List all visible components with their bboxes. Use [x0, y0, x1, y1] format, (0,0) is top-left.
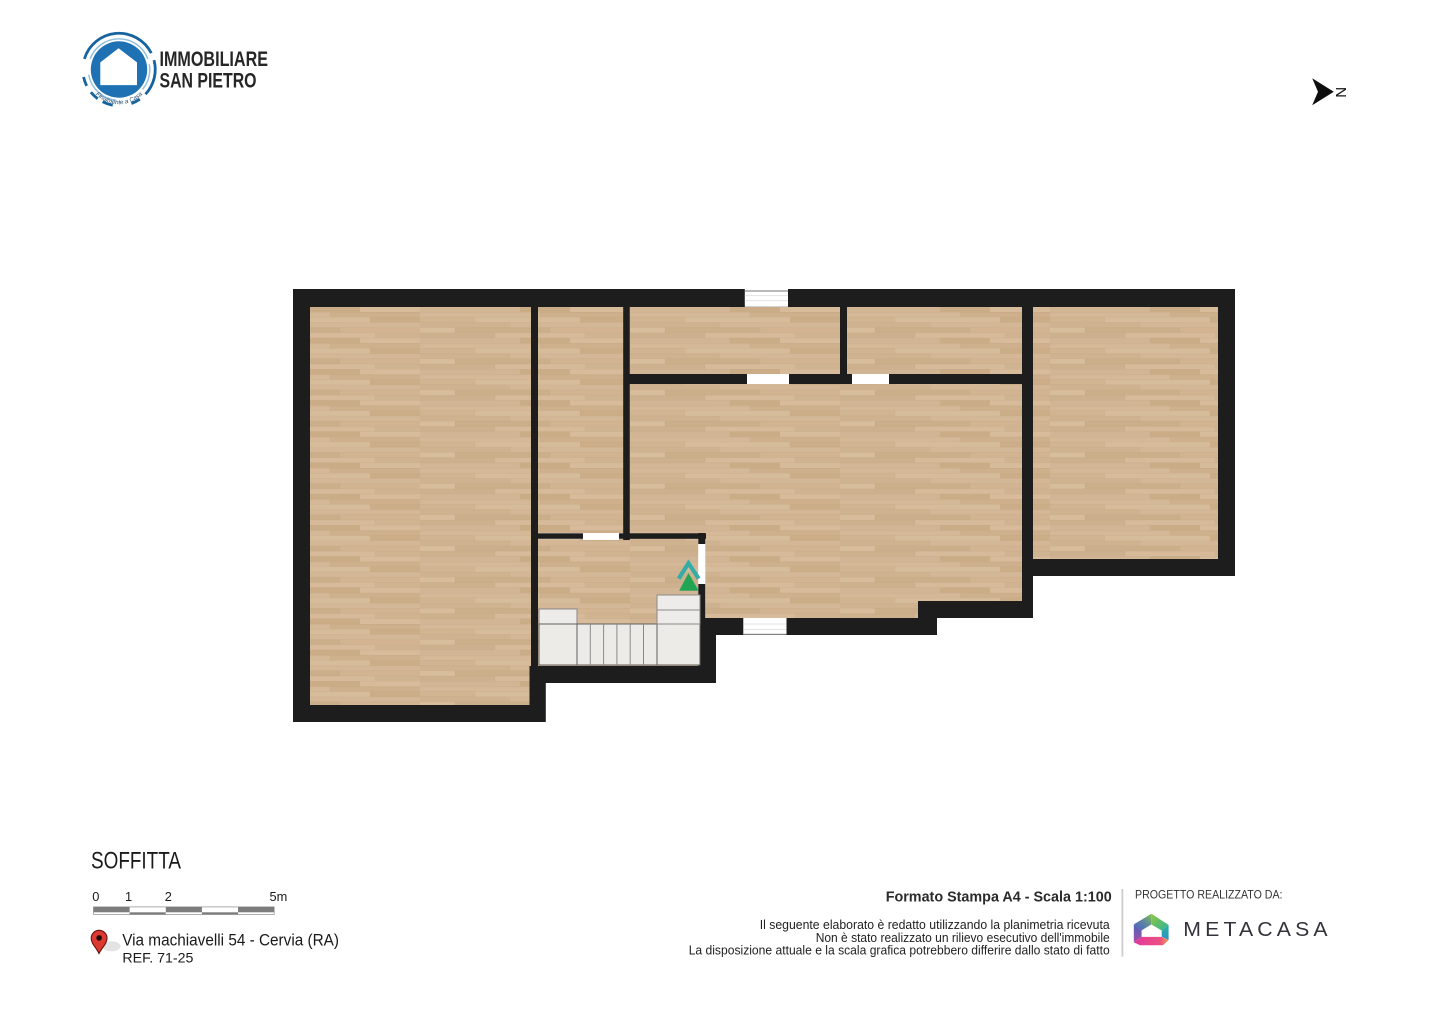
svg-text:SAN PIETRO: SAN PIETRO: [160, 68, 257, 92]
svg-text:1: 1: [125, 889, 132, 904]
svg-text:5m: 5m: [270, 889, 288, 904]
svg-text:REF. 71-25: REF. 71-25: [122, 951, 193, 967]
svg-text:METACASA: METACASA: [1183, 918, 1331, 941]
svg-text:IMMOBILIARE: IMMOBILIARE: [160, 47, 269, 71]
svg-text:Formato Stampa A4 - Scala 1:10: Formato Stampa A4 - Scala 1:100: [886, 890, 1112, 906]
svg-text:SOFFITTA: SOFFITTA: [91, 848, 181, 875]
svg-text:0: 0: [92, 889, 99, 904]
svg-text:La disposizione attuale e la s: La disposizione attuale e la scala grafi…: [689, 944, 1110, 958]
svg-text:2: 2: [165, 889, 172, 904]
svg-text:Via machiavelli 54 - Cervia (R: Via machiavelli 54 - Cervia (RA): [122, 931, 339, 950]
svg-text:N: N: [1332, 87, 1349, 98]
svg-text:PROGETTO REALIZZATO DA:: PROGETTO REALIZZATO DA:: [1135, 889, 1283, 901]
